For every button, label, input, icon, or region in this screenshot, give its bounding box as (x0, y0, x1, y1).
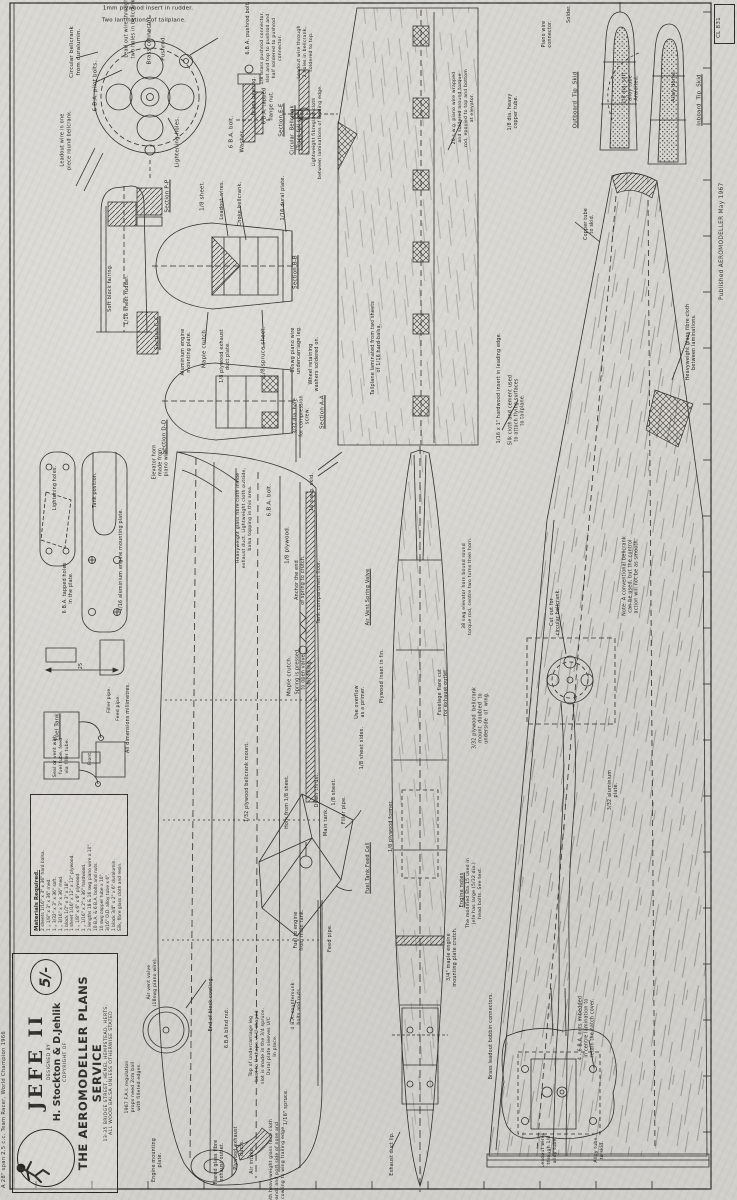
plan-label: 1/8 sheet sides. (359, 727, 366, 770)
plan-label: Flared glass fibre exhaust outlet. (214, 1140, 226, 1185)
materials-item: Silk, fibre glass cloth and resin. (118, 799, 124, 931)
plan-label: Tank position. (93, 472, 99, 508)
plan-label: Engine mounting plate. (152, 1138, 164, 1182)
plan-label: Lightening holes. (53, 466, 59, 511)
plan-label: 6.B.A. bolt. (266, 484, 273, 517)
plan-label: Feed pipe. (116, 695, 122, 721)
plan-label: 6 B.A. tapped flange nut. (262, 88, 275, 125)
plan-label: Cut out for circular bellcrank. (550, 589, 562, 636)
plan-label: Lead out wire through two holes in bellc… (124, 0, 137, 58)
plan-label: Air vent valve (18swg piano wire). (147, 957, 159, 1006)
plan-label: 6.B.A. pushrod bolt. (245, 1, 252, 54)
plan-label: 1/32 plywood bellcrank mount. (245, 742, 251, 822)
plan-label: Inboard Tip Skid (696, 74, 703, 126)
plan-label: Circular bellcrank from duralumin. (69, 26, 83, 78)
plan-label: Brass bearing. (251, 77, 258, 116)
plan-label: Spring is pressed to open valve for fill… (296, 650, 315, 695)
plan-label: 1mm plywood insert in rudder. (103, 5, 193, 12)
plan-label: 1/8 plywood former. (389, 800, 395, 852)
plan-label: Pushrod. (160, 35, 167, 60)
plan-label: Solder. (567, 5, 573, 23)
plan-label: 3/4" maple engine mounting plate crutch. (447, 927, 459, 986)
published-note: Published AEROMODELLER May 1967 (719, 128, 725, 300)
plan-label: Leadout wire through 2 holes in bellcran… (297, 25, 315, 78)
plan-label: Note: A conventional bellcrank can be us… (623, 536, 642, 616)
plan-label: 6 B.A. bolt. (228, 116, 235, 149)
plan-label: 1967 F.A.I. regulation props need 2cm ba… (125, 1060, 143, 1113)
plan-label: Choke bellcrank. (237, 182, 244, 227)
plan-label: Feed pipe. (327, 924, 334, 952)
plan-label: 1/8 plywood exhaust duct plate. (220, 329, 232, 383)
plan-label: Lightweight fibreglass cloth between lam… (312, 85, 324, 179)
price-badge: 5/- (30, 959, 62, 995)
all-balsa-note: ALL WOOD BALSA UNLESS OTHERWISE STATED (109, 959, 114, 1187)
plan-label: 20 s.w.g. piano wire wrapped and soldere… (452, 69, 476, 147)
plan-label: Section B-B (292, 255, 299, 289)
running-man-logo-icon (17, 1129, 75, 1187)
plan-title: JEFE II (25, 1001, 47, 1123)
plan-label: Brass connector. (146, 16, 153, 65)
plan-label: Filler pipe. (107, 687, 113, 713)
designers: H. Stockton & D.Jehlik (52, 1001, 63, 1123)
plan-label: All dimensions millimetres. (126, 683, 132, 753)
plan-label: Front. (88, 751, 94, 765)
plan-label: Engine notes (459, 873, 466, 908)
plan-number: CL 831 (716, 8, 722, 38)
plan-label: Tailplane laminated from two sheets of 1… (371, 301, 383, 395)
title-block-center: JEFE II DESIGNED BY H. Stockton & D.Jehl… (25, 1001, 68, 1123)
materials-list: Materials Required. 2 sheets 1/16" x 3" … (30, 794, 128, 936)
plan-label: Section E-E (278, 103, 285, 136)
title-block: JEFE II DESIGNED BY H. Stockton & D.Jehl… (12, 953, 118, 1193)
plan-label: Anchor the end of spring to crutch. (295, 555, 307, 605)
plan-label: Alloy tube to skid. (594, 1137, 606, 1162)
materials-items: 2 sheets 1/16" x 3" x 36" hard balsa.1 „… (41, 799, 123, 931)
plan-label: 1/16 dural plate. (280, 176, 287, 221)
plan-label: Section P-P (164, 180, 171, 213)
section-p-p-detail (137, 188, 162, 226)
plan-label: Outboard Tip Skid (572, 72, 579, 129)
plan-label: 1/8 brass pushrod connector, slot and to… (260, 12, 284, 85)
plan-label: Soft block fairing. (107, 264, 114, 312)
plan-label: Air intake. (249, 1146, 256, 1174)
plan-label: 1/16 sheet rudder. (124, 275, 131, 325)
plan-label: 1/8 sheet. (331, 778, 338, 805)
cowl-section-upper (152, 223, 298, 309)
margin-note: A 28" span 2.5 c.c. Team Racer, World Ch… (1, 968, 7, 1188)
plan-label: 4 B.A. countersunk bolts and nuts. (291, 982, 303, 1029)
plan-label: Lightening holes. (174, 117, 181, 168)
plan-label: Tank compartment floor. (317, 560, 323, 623)
plan-label: Fuselage flare cut for exhaust outlet. (438, 668, 450, 716)
plan-label: Silk cloth and cement used to attach fly… (509, 375, 528, 445)
plan-label: Plywood inset in fin. (379, 649, 386, 703)
fuselage-top-view (392, 446, 448, 1192)
plan-label: 1/16 aluminium engine mounting plate. (119, 509, 125, 612)
plan-sheet: CL 831 Published AEROMODELLER May 1967 A… (0, 0, 737, 1200)
plan-label: Brass leadout bobbin connectors. (489, 993, 495, 1080)
plan-label: 1/8 plywood. (284, 526, 291, 564)
plan-label: Top of undercarriage leg bent to U-shape… (249, 1008, 279, 1084)
plan-label: Section C-C (154, 316, 161, 350)
plan-label: 3/32 plywood bellcrank mount doubled to … (473, 687, 492, 749)
plan-label: 1/8 dia. heavy copper tube. (508, 93, 520, 130)
plan-label: Main tank. (323, 808, 330, 836)
plan-label: 4 - 6 B.A. nuts imbedded in centre lamin… (579, 996, 598, 1060)
plan-label: 25 (79, 663, 85, 670)
plan-label: Fuel to engine from main tank. (294, 909, 306, 950)
plan-label: Section A-A (319, 395, 326, 429)
plan-label: Plywood exhaust ducts. (234, 1126, 246, 1170)
plan-label: The modified Eta 15 used in Jefe has lar… (466, 858, 484, 928)
plan-label: Exhaust duct lip. (390, 1132, 396, 1176)
plan-label: Air Vent Spring Valve (365, 569, 372, 626)
plan-label: 1/8 dia. soft alloy tube Araldited. (623, 72, 642, 103)
plan-label: Leadout wire in one piece round bellcran… (60, 110, 73, 170)
copyright-label: COPYRIGHT OF (63, 1001, 68, 1123)
plan-label: Leadout wires. (219, 180, 226, 219)
plan-label: Both heavyweight glass fibre cloth bands… (269, 1119, 287, 1200)
plan-label: 3/32 dia. hole for compression screw. (294, 395, 313, 437)
plan-label: Alloy dome. (671, 70, 678, 102)
plan-label: Maple crutch. (201, 328, 208, 368)
plan-label: 38 swg elevator horn bound round torque … (462, 537, 474, 635)
plan-label: 10swg piano wire undercarriage leg. (291, 326, 303, 374)
plan-label: Seal or vent with fuel tube, feed via fi… (53, 735, 71, 777)
plan-label: Use overflow as a primer. (355, 685, 367, 718)
plan-label: Circular Bellcrank (Trace full size) (290, 105, 303, 154)
plan-label: End of block cowling. (209, 976, 215, 1031)
plan-label: 16 s.w.g. skid. (309, 473, 316, 511)
plan-label: Piano wire connector. (542, 20, 554, 47)
plan-label: Filler pipe. (341, 796, 348, 824)
plan-label: Horn from 1/8 sheet. (285, 775, 291, 829)
plan-label: Copper tube to skid. (584, 208, 596, 240)
title-block-row: JEFE II DESIGNED BY H. Stockton & D.Jehl… (16, 959, 76, 1187)
plan-label: 6 B.A. tapped holes in the plate. (63, 563, 75, 614)
plan-label: 1/8 sheet. (199, 181, 206, 211)
plan-label: 1/8 spruce sheet. (260, 326, 267, 377)
wing-plan (487, 173, 709, 1167)
plan-label: Wheel retaining washers soldered on. (309, 337, 321, 392)
plan-label: 3/32 aluminium plate. (608, 770, 620, 811)
plan-label: Aluminium engine mounting plate. (181, 329, 193, 376)
plan-label: Heavyweight glass fibre cloth inside exh… (236, 468, 254, 568)
plan-label: Heavyweight glass fibre cloth between la… (686, 304, 698, 381)
plan-label: Down thrust. (314, 773, 321, 808)
plan-label: Leadout wires through 1/8 alloy tube. (541, 1133, 559, 1168)
plan-label: Maple crutch. (286, 656, 293, 696)
plans-service-name: THE AEROMODELLER PLANS SERVICE (76, 959, 104, 1187)
plan-label: 6 B.A. pilot bolts. (92, 61, 99, 112)
plan-label: Two laminations of tailplane. (102, 17, 186, 24)
plan-label: Fuel Tank Feed Cell (365, 842, 372, 893)
plan-label: 1/16 x 1" hardwood insert in leading edg… (497, 333, 503, 444)
plan-label: Washer. (239, 129, 246, 152)
materials-heading: Materials Required. (34, 799, 40, 931)
plan-label: Elevator horn made from piano wire. (153, 445, 172, 480)
plan-label: 6.B.A blind nut. (225, 1008, 231, 1048)
